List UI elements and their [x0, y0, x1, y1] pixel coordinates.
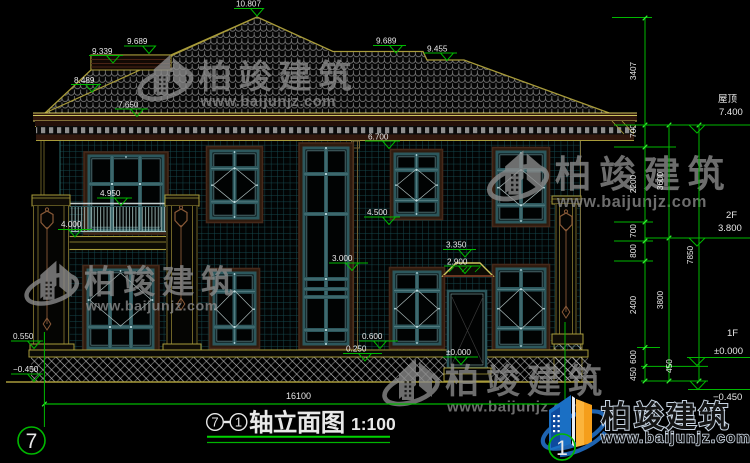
svg-text:7: 7	[211, 415, 218, 430]
svg-text:700: 700	[629, 124, 638, 138]
svg-text:4.500: 4.500	[367, 208, 388, 217]
svg-text:1: 1	[556, 437, 568, 460]
svg-text:屋顶: 屋顶	[718, 94, 738, 105]
svg-text:9.455: 9.455	[427, 45, 448, 54]
svg-text:450: 450	[665, 359, 674, 373]
svg-text:450: 450	[629, 367, 638, 381]
svg-text:7.650: 7.650	[118, 101, 139, 110]
svg-text:10.807: 10.807	[236, 0, 261, 9]
svg-text:轴立面图: 轴立面图	[249, 408, 345, 437]
svg-text:3.350: 3.350	[446, 241, 467, 250]
svg-text:9.689: 9.689	[127, 37, 148, 46]
svg-text:7.400: 7.400	[719, 107, 743, 118]
svg-text:2200: 2200	[629, 174, 638, 193]
svg-text:0.600: 0.600	[362, 332, 383, 341]
svg-text:3600: 3600	[656, 171, 665, 190]
svg-text:6.700: 6.700	[368, 133, 389, 142]
svg-text:4.000: 4.000	[61, 220, 82, 229]
svg-text:7: 7	[26, 430, 38, 453]
svg-text:16100: 16100	[286, 391, 311, 401]
svg-text:8.489: 8.489	[74, 76, 95, 85]
svg-text:2.900: 2.900	[447, 258, 468, 267]
svg-text:±0.000: ±0.000	[446, 348, 471, 357]
svg-text:0.550: 0.550	[13, 332, 34, 341]
svg-text:2400: 2400	[629, 295, 638, 314]
svg-text:3407: 3407	[629, 61, 638, 80]
svg-text:2F: 2F	[726, 210, 737, 221]
svg-text:4.950: 4.950	[100, 189, 121, 198]
svg-text:柏竣建筑: 柏竣建筑	[601, 400, 731, 434]
svg-text:−0.450: −0.450	[13, 365, 39, 374]
svg-text:1: 1	[235, 415, 242, 430]
svg-text:7850: 7850	[686, 245, 695, 264]
svg-text:700: 700	[629, 224, 638, 238]
svg-text:3.000: 3.000	[332, 254, 353, 263]
svg-text:800: 800	[629, 244, 638, 258]
svg-text:1:100: 1:100	[351, 414, 396, 434]
svg-text:3.800: 3.800	[718, 223, 742, 234]
svg-text:3800: 3800	[656, 290, 665, 309]
svg-text:www.baijunjz.com: www.baijunjz.com	[600, 431, 750, 447]
svg-text:9.339: 9.339	[92, 47, 113, 56]
svg-text:9.689: 9.689	[376, 37, 397, 46]
svg-text:1F: 1F	[727, 328, 738, 339]
svg-text:±0.000: ±0.000	[714, 346, 743, 357]
svg-text:600: 600	[629, 350, 638, 364]
svg-text:0.250: 0.250	[346, 345, 367, 354]
